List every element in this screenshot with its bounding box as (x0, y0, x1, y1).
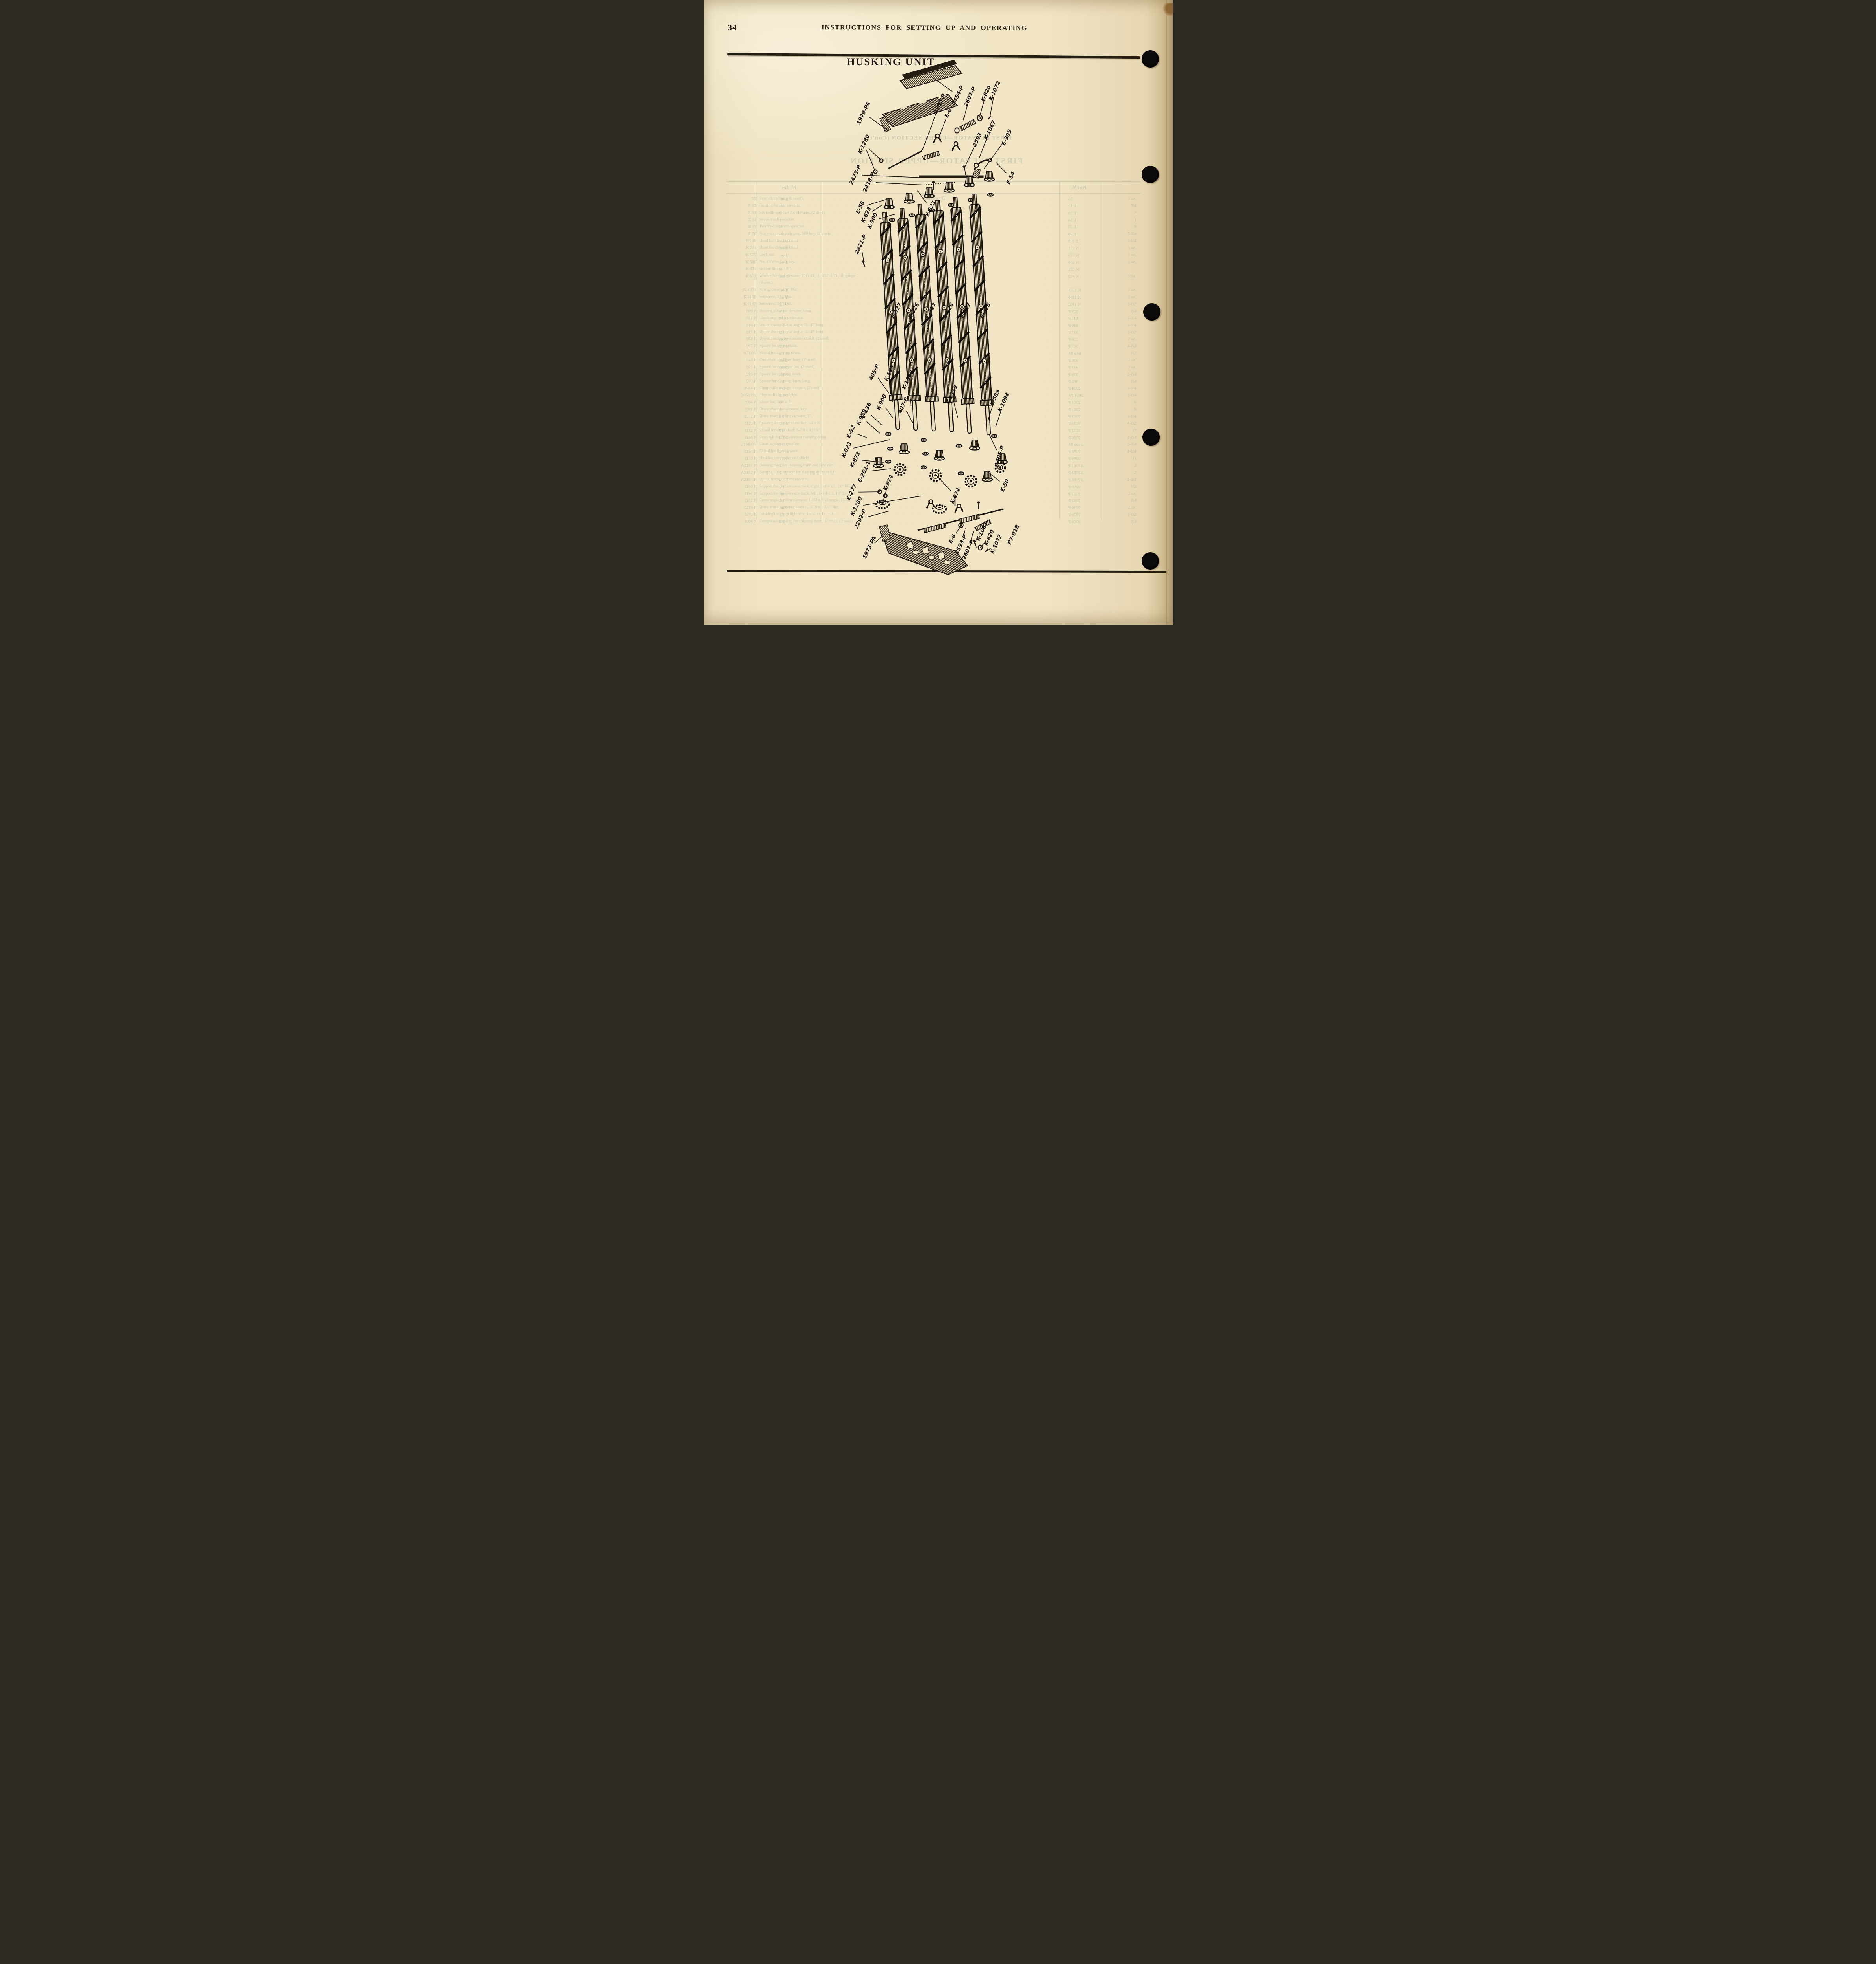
binder-hole (1142, 552, 1159, 570)
leader-line (869, 149, 881, 160)
binder-hole (1142, 429, 1160, 446)
upper-shield-plate-assembly (880, 60, 962, 132)
leader-line (938, 119, 946, 139)
bottom-assembly-group (879, 496, 1003, 575)
washer (956, 444, 962, 447)
washer (886, 432, 891, 435)
sprocket-gear (895, 464, 906, 475)
bearing-cap (944, 182, 954, 192)
bearing-cap (970, 440, 980, 450)
leader-line (875, 183, 923, 185)
bearing-cap (984, 171, 994, 181)
leader-line (956, 526, 961, 533)
leader-line (979, 100, 984, 117)
leader-line (863, 496, 921, 505)
leader-line (906, 411, 913, 423)
leader-line (996, 163, 1006, 173)
leader-line (853, 440, 889, 448)
leader-line (954, 401, 958, 418)
gears-group (876, 463, 1005, 513)
leader-line (984, 143, 1003, 169)
sprocket-gear (965, 476, 976, 487)
bearing-cap (982, 471, 992, 482)
leader-line (866, 421, 879, 433)
bearing-cap (904, 193, 914, 203)
bearing-cap (924, 188, 934, 198)
bearing-cap (964, 177, 974, 187)
bearing-cap (899, 444, 909, 454)
washer (921, 438, 926, 441)
leader-line (936, 475, 951, 491)
leader-line (965, 146, 975, 167)
leader-line (858, 492, 879, 492)
washer (921, 466, 926, 469)
bearing-cap (873, 458, 884, 468)
washer (988, 193, 993, 196)
leader-line (872, 205, 882, 211)
leader-line (867, 511, 889, 517)
bearing-cap (884, 199, 894, 209)
washer (958, 472, 964, 475)
binder-hole (1143, 303, 1160, 321)
washer (889, 218, 895, 221)
washer (992, 434, 997, 437)
scanned-manual-page: 34 INSTRUCTIONS FOR SETTING UP AND OPERA… (704, 0, 1173, 625)
washer (886, 460, 891, 463)
bearing-cap (934, 450, 944, 460)
washer (948, 203, 954, 206)
washer (923, 452, 928, 455)
washer (888, 447, 893, 450)
leader-line (857, 434, 866, 438)
leader-line (871, 415, 882, 425)
binder-hole (1142, 50, 1159, 68)
washer (909, 214, 915, 216)
exploded-diagram-artwork (704, 0, 1173, 625)
binder-hole (1142, 166, 1159, 183)
leader-line (885, 408, 892, 418)
leader-line (871, 469, 891, 471)
sprocket-gear (930, 470, 941, 481)
